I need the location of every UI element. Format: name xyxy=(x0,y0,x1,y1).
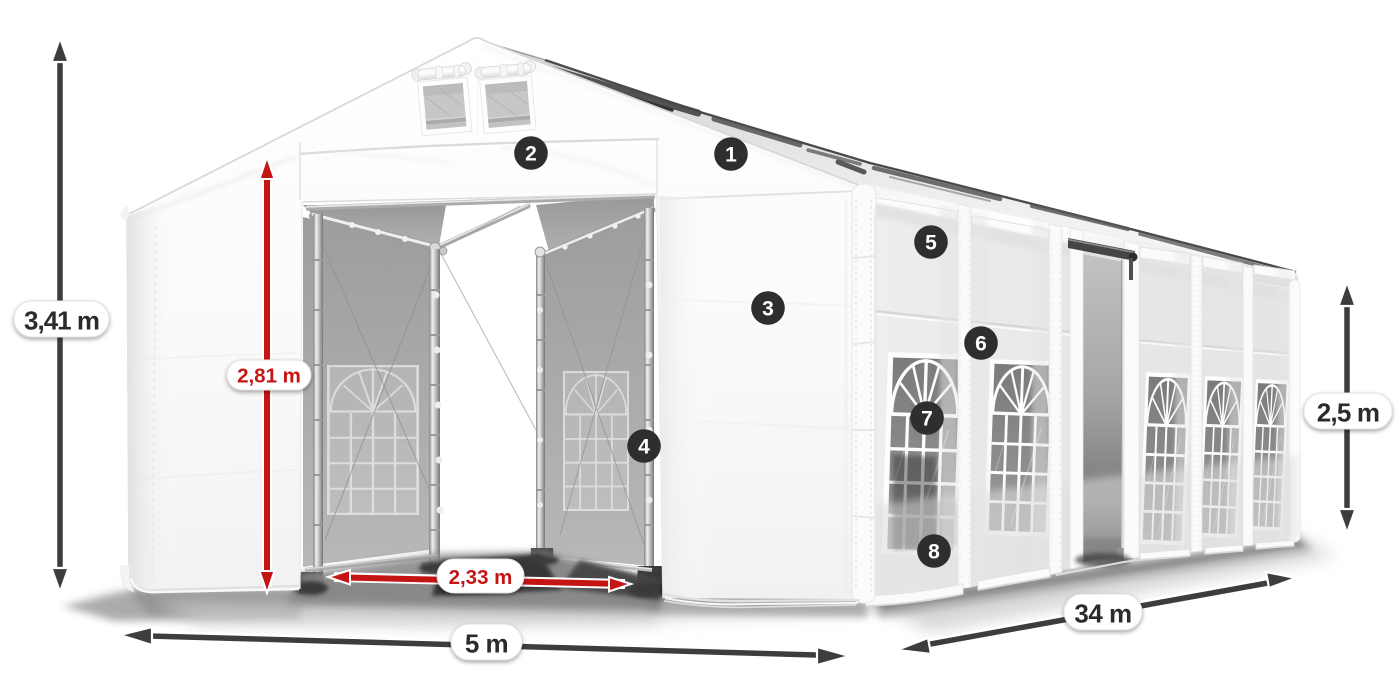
svg-text:3: 3 xyxy=(762,298,774,321)
svg-text:2: 2 xyxy=(525,143,537,166)
svg-text:8: 8 xyxy=(928,541,940,564)
svg-text:2,81 m: 2,81 m xyxy=(237,365,301,388)
svg-text:2,33 m: 2,33 m xyxy=(449,566,513,589)
svg-text:5 m: 5 m xyxy=(465,629,508,659)
svg-text:2,5 m: 2,5 m xyxy=(1317,398,1380,428)
svg-text:3,41 m: 3,41 m xyxy=(24,306,99,336)
svg-text:1: 1 xyxy=(725,144,737,167)
svg-text:4: 4 xyxy=(638,436,650,459)
svg-text:7: 7 xyxy=(921,408,933,431)
svg-text:34 m: 34 m xyxy=(1074,599,1131,629)
svg-text:5: 5 xyxy=(925,232,937,255)
svg-text:6: 6 xyxy=(975,333,987,356)
